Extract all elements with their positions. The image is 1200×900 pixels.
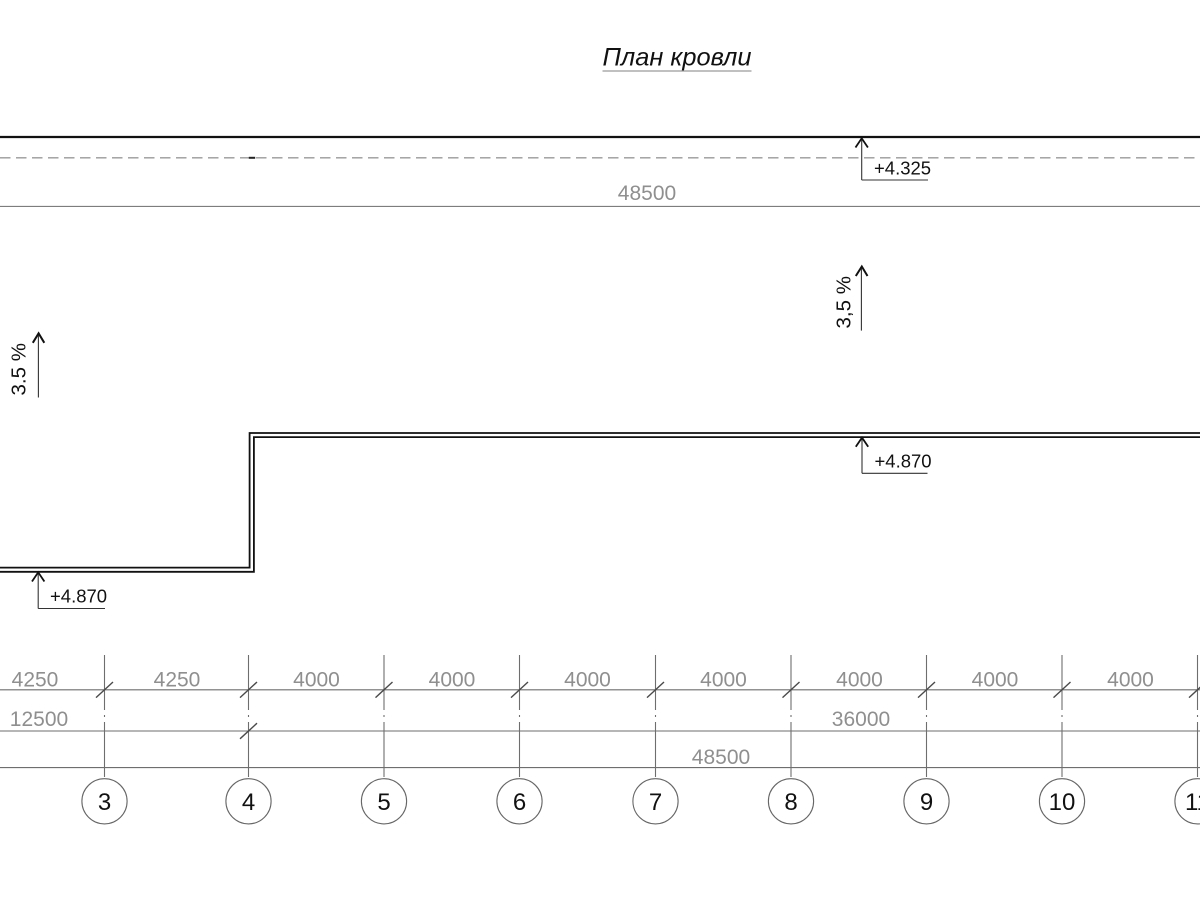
svg-text:4250: 4250: [12, 668, 59, 691]
svg-text:4000: 4000: [972, 668, 1019, 691]
svg-text:4000: 4000: [700, 668, 747, 691]
svg-text:11: 11: [1185, 789, 1200, 816]
svg-text:36000: 36000: [832, 708, 890, 731]
svg-text:4000: 4000: [1107, 668, 1154, 691]
svg-text:4250: 4250: [154, 668, 201, 691]
svg-text:План кровли: План кровли: [603, 44, 752, 72]
svg-text:3.5 %: 3.5 %: [8, 343, 31, 395]
svg-text:12500: 12500: [10, 708, 68, 731]
svg-text:5: 5: [377, 789, 390, 816]
svg-text:8: 8: [784, 789, 797, 816]
svg-text:+4.870: +4.870: [50, 586, 107, 607]
svg-text:4000: 4000: [429, 668, 476, 691]
svg-text:48500: 48500: [692, 746, 750, 769]
svg-text:+4.325: +4.325: [874, 157, 931, 178]
svg-text:7: 7: [649, 789, 662, 816]
svg-text:6: 6: [513, 789, 526, 816]
svg-text:4000: 4000: [564, 668, 611, 691]
svg-text:48500: 48500: [618, 182, 676, 205]
svg-text:3,5 %: 3,5 %: [833, 276, 856, 328]
svg-text:10: 10: [1049, 789, 1076, 816]
svg-text:9: 9: [920, 789, 933, 816]
svg-text:+4.870: +4.870: [875, 450, 932, 471]
svg-text:4: 4: [242, 789, 255, 816]
svg-text:3: 3: [98, 789, 111, 816]
svg-text:4000: 4000: [293, 668, 340, 691]
svg-text:4000: 4000: [836, 668, 883, 691]
